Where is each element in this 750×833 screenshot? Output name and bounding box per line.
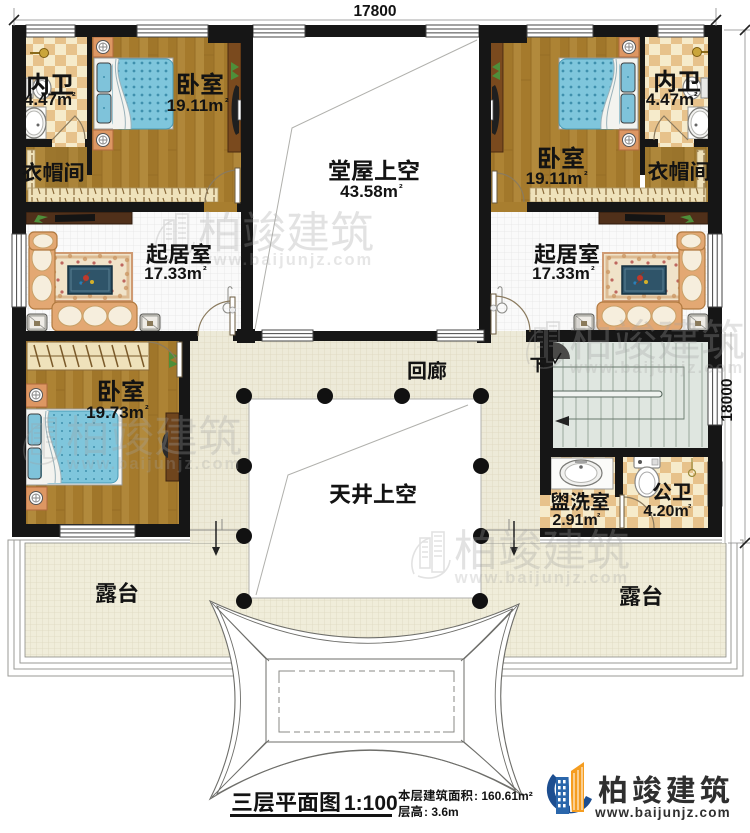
svg-text:17800: 17800: [353, 3, 396, 20]
svg-text:www.baijunjz.com: www.baijunjz.com: [594, 805, 731, 820]
svg-text:43.58m: 43.58m: [340, 182, 398, 201]
svg-text:²: ²: [203, 265, 207, 277]
svg-text:www.baijunjz.com: www.baijunjz.com: [198, 251, 373, 269]
svg-text:19.73m: 19.73m: [86, 403, 144, 422]
svg-text:1:100: 1:100: [344, 792, 398, 815]
svg-text:4.47m: 4.47m: [646, 90, 694, 109]
svg-text:: 3.6m: : 3.6m: [424, 805, 459, 819]
svg-text:19.11m: 19.11m: [167, 96, 224, 115]
svg-text:²: ²: [584, 170, 588, 182]
svg-text:²: ²: [145, 404, 149, 416]
svg-text:www.baijunjz.com: www.baijunjz.com: [66, 455, 241, 473]
svg-text:4.20m: 4.20m: [643, 503, 688, 520]
svg-text:www.baijunjz.com: www.baijunjz.com: [454, 569, 629, 587]
svg-text:²: ²: [399, 183, 403, 195]
svg-text:²: ²: [72, 91, 76, 103]
svg-text:www.baijunjz.com: www.baijunjz.com: [569, 359, 744, 377]
svg-text:19.11m: 19.11m: [526, 169, 583, 188]
svg-text:4.47m: 4.47m: [24, 90, 72, 109]
svg-text:²: ²: [225, 97, 229, 109]
svg-text:²: ²: [591, 265, 595, 277]
svg-text:²: ²: [694, 91, 698, 103]
svg-text:18000: 18000: [719, 378, 736, 421]
svg-text:17.33m: 17.33m: [532, 264, 590, 283]
svg-text:: 160.61m²: : 160.61m²: [474, 789, 533, 803]
svg-text:17.33m: 17.33m: [144, 264, 202, 283]
svg-text:2.91m: 2.91m: [552, 512, 597, 529]
